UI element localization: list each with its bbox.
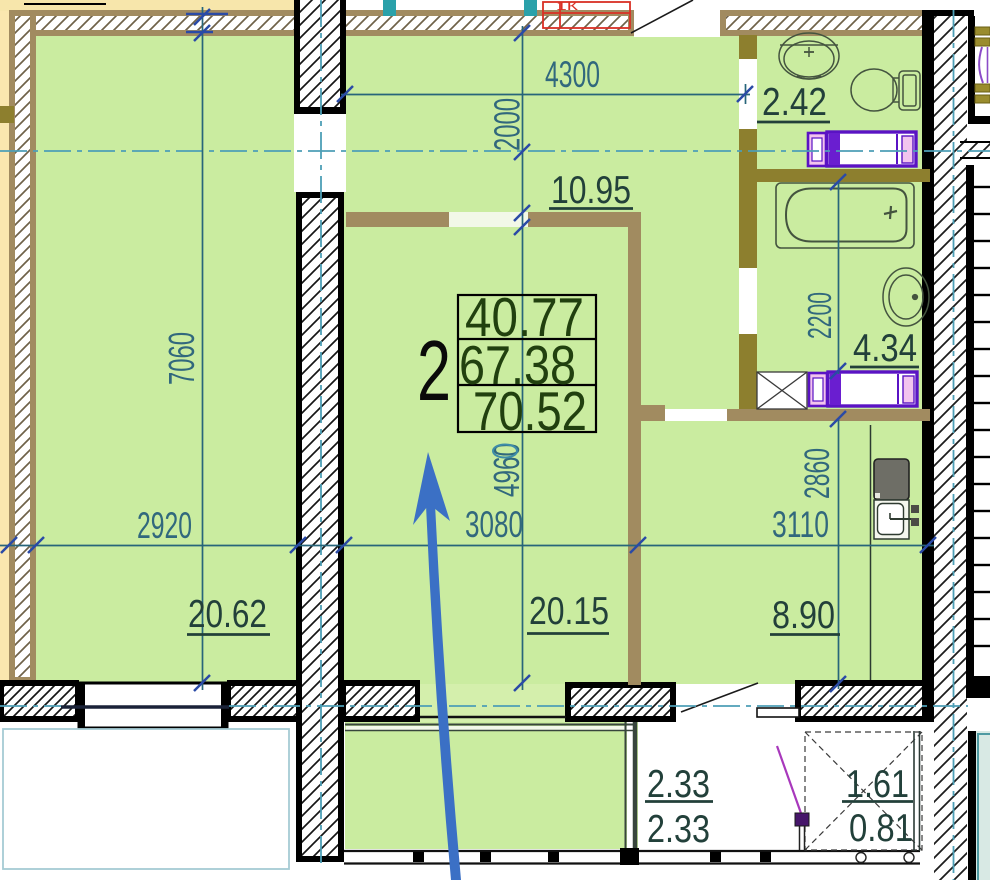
svg-text:20.15: 20.15 xyxy=(529,590,609,633)
svg-text:7060: 7060 xyxy=(161,332,202,385)
svg-text:0.81: 0.81 xyxy=(849,807,913,850)
svg-text:10.95: 10.95 xyxy=(551,169,631,212)
svg-text:2: 2 xyxy=(417,324,451,419)
svg-text:2860: 2860 xyxy=(798,448,837,499)
svg-text:3080: 3080 xyxy=(465,504,523,545)
svg-text:2.42: 2.42 xyxy=(762,81,827,124)
svg-text:3110: 3110 xyxy=(772,504,829,545)
svg-text:4300: 4300 xyxy=(545,54,600,95)
svg-text:1К: 1К xyxy=(556,0,578,13)
svg-text:1.61: 1.61 xyxy=(846,763,909,806)
svg-text:8.90: 8.90 xyxy=(772,594,835,637)
svg-text:70.52: 70.52 xyxy=(473,380,587,442)
svg-text:2.33: 2.33 xyxy=(647,763,710,806)
svg-text:20.62: 20.62 xyxy=(188,593,267,636)
svg-text:2920: 2920 xyxy=(137,505,192,546)
svg-text:2.33: 2.33 xyxy=(647,808,710,851)
svg-text:2200: 2200 xyxy=(801,292,838,339)
svg-text:2000: 2000 xyxy=(487,98,528,151)
svg-text:4.34: 4.34 xyxy=(853,327,917,370)
